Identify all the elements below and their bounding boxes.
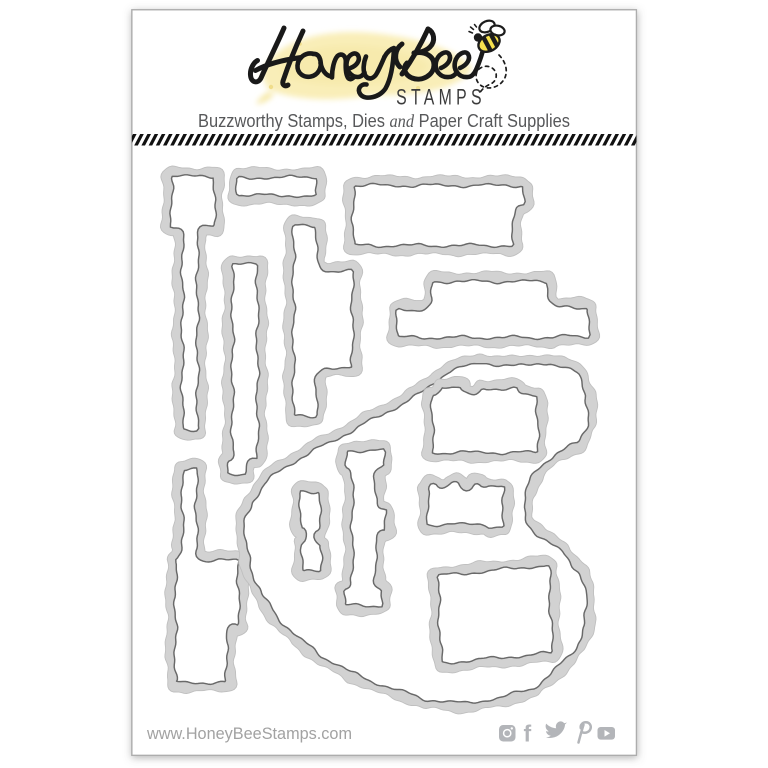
- svg-text:Buzzworthy Stamps, Dies and Pa: Buzzworthy Stamps, Dies and Paper Craft …: [198, 111, 570, 131]
- svg-text:www.HoneyBeeStamps.com: www.HoneyBeeStamps.com: [146, 725, 352, 743]
- svg-text:STAMPS: STAMPS: [396, 86, 486, 110]
- svg-text:f: f: [524, 721, 532, 747]
